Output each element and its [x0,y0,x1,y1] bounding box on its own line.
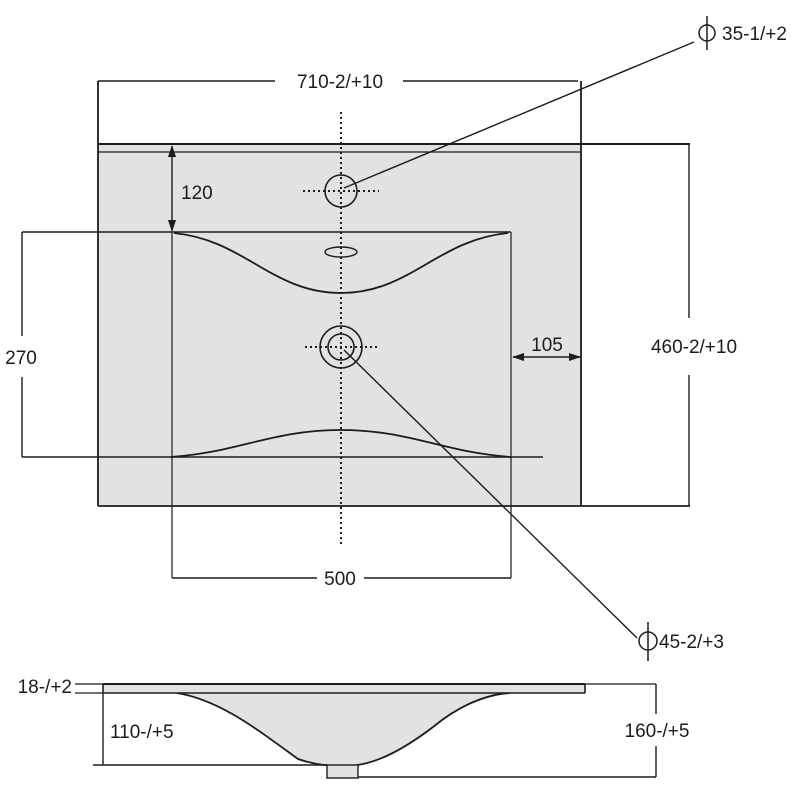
callout-faucet-diameter: 35-1/+2 [699,16,787,50]
plan-view: 710-2/+10 120 270 500 [5,16,787,661]
basin-technical-drawing: 710-2/+10 120 270 500 [0,0,800,800]
rim-slab-fill [103,684,585,693]
dim-overall-height: 160-/+5 [585,684,689,777]
bowl-section-fill [177,693,510,766]
dim-label-bowl-depth: 270 [5,348,37,369]
dim-label-faucet-diameter: 35-1/+2 [722,24,787,45]
dim-rim-thickness: 18-/+2 [18,677,103,698]
dim-label-overall-height: 160-/+5 [625,721,690,742]
dim-label-tap-ledge: 120 [181,183,213,204]
diameter-icon [639,622,657,661]
dim-overall-width: 710-2/+10 [98,72,578,93]
drawing-canvas: 710-2/+10 120 270 500 [0,0,800,800]
dim-label-overall-width: 710-2/+10 [297,72,383,93]
dim-label-drain-diameter: 45-2/+3 [659,632,724,653]
dim-overall-depth: 460-2/+10 [651,144,737,506]
dim-label-overall-depth: 460-2/+10 [651,337,737,358]
drain-stub [327,765,358,778]
dim-label-rim-thickness: 18-/+2 [18,677,72,698]
section-view: 18-/+2 110-/+5 160-/+5 [18,677,690,778]
basin-body-fill [98,144,581,506]
dim-label-side-ledge: 105 [531,335,563,356]
dim-label-bowl-inner-depth: 110-/+5 [110,722,174,743]
dim-label-bowl-width: 500 [324,569,356,590]
dim-ticks-18 [75,684,103,693]
diameter-icon [699,16,715,50]
dim-bowl-depth: 270 [5,232,37,457]
dim-bowl-inner-depth: 110-/+5 [103,693,174,765]
dim-bowl-width: 500 [172,569,511,590]
callout-drain-diameter: 45-2/+3 [639,622,724,661]
